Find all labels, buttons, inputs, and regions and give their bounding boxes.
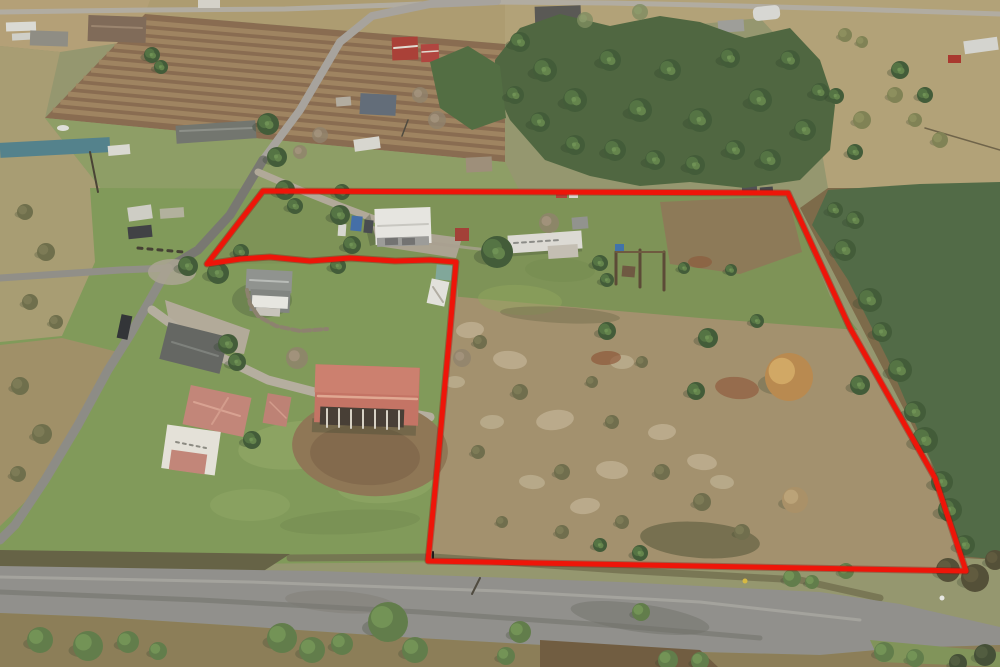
aerial-photo: [0, 0, 1000, 667]
aerial-photo-frame: [0, 0, 1000, 667]
